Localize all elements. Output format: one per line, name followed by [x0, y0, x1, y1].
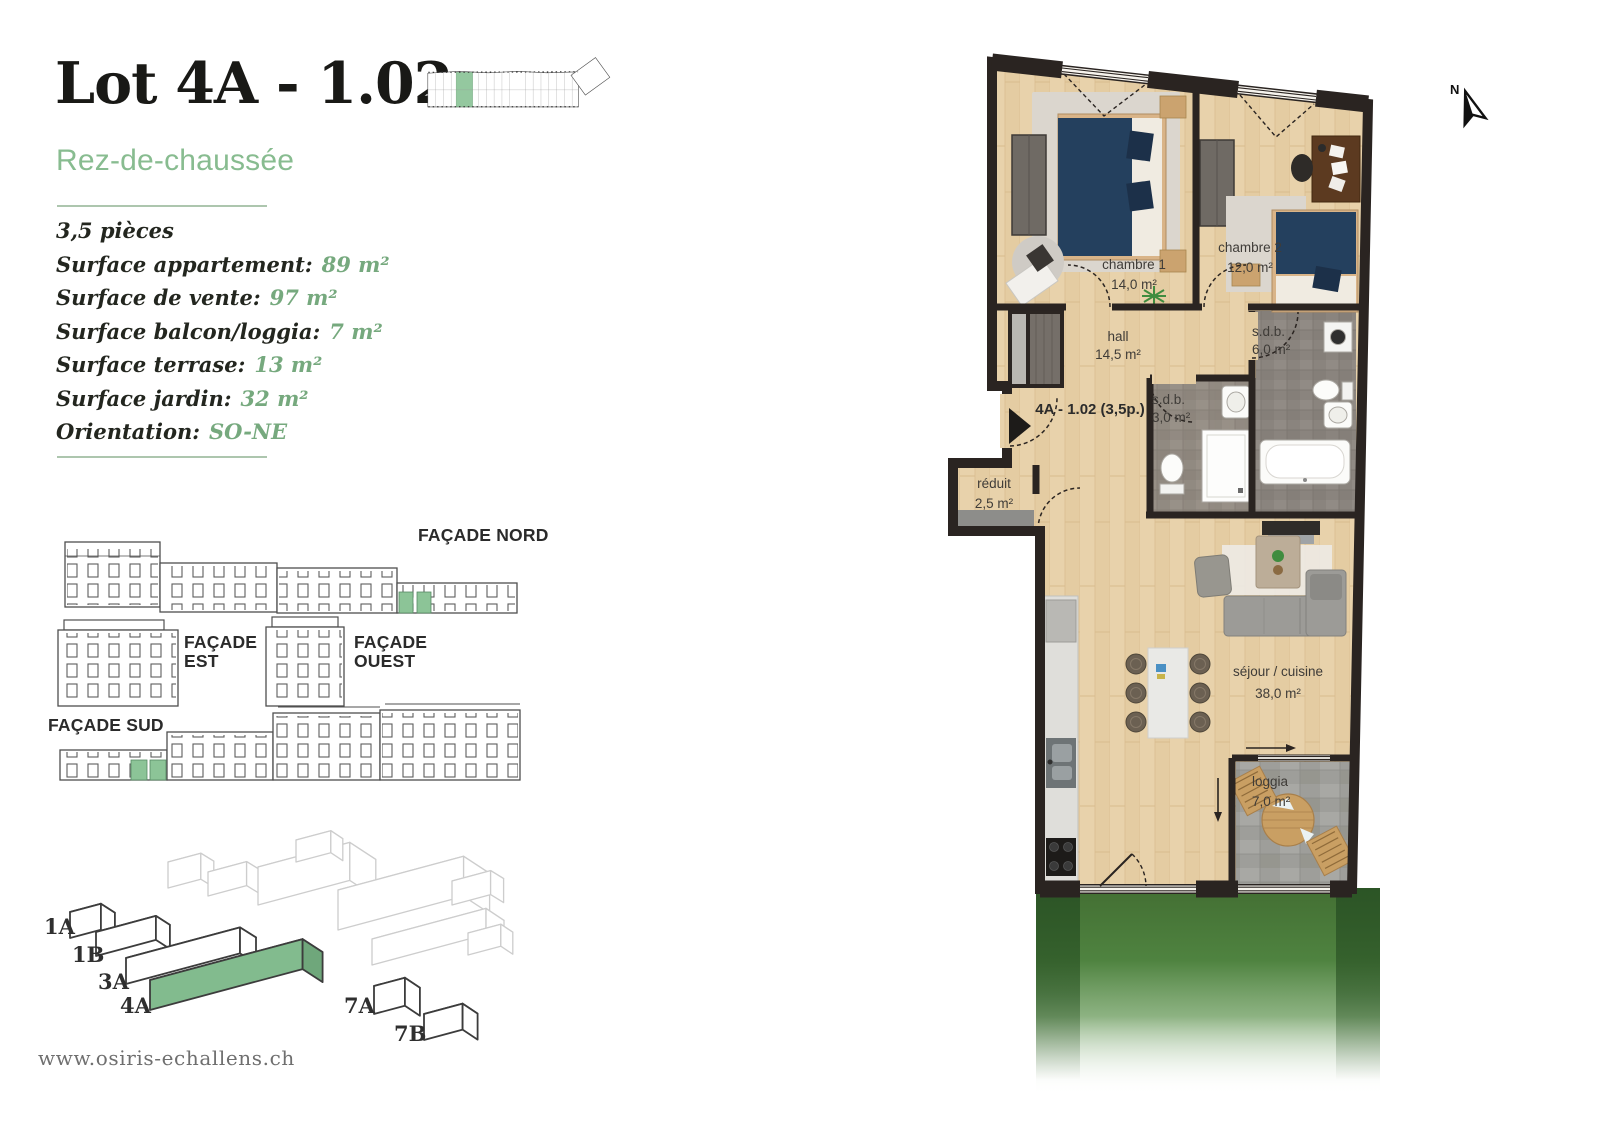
brochure-page: Lot 4A - 1.02 Rez-de-chaussée 3,5 pièces… [0, 0, 1600, 1131]
room-label-sdb6: s.d.b. [1252, 324, 1285, 339]
detail-row: Surface appartement:89 m² [56, 252, 476, 286]
key-plan-outline [428, 71, 579, 107]
room-label-chambre1: chambre 1 [1102, 257, 1166, 272]
svg-text:14,5 m²: 14,5 m² [1095, 347, 1141, 362]
detail-row: Surface terrase:13 m² [56, 352, 476, 386]
svg-text:7,0 m²: 7,0 m² [1252, 794, 1291, 809]
facade-sud-label: FAÇADE SUD [48, 716, 164, 735]
block-label-7b: 7B [394, 1021, 426, 1046]
iso-block [405, 978, 420, 1016]
bedroom2-bed [1276, 212, 1356, 274]
property-details: 3,5 pièces Surface appartement:89 m² Sur… [56, 218, 476, 453]
dining-set [1126, 648, 1210, 738]
floor-subtitle: Rez-de-chaussée [56, 144, 294, 178]
svg-text:12,0 m²: 12,0 m² [1227, 260, 1273, 275]
facade-nord-highlight [417, 592, 431, 613]
facade-nord-label: FAÇADE NORD [418, 526, 549, 545]
room-label-reduit: réduit [977, 476, 1011, 491]
unit-label: 4A - 1.02 (3,5p.) [1035, 401, 1144, 418]
divider-bottom [57, 456, 267, 458]
detail-row: Surface jardin:32 m² [56, 386, 476, 420]
detail-row: Surface balcon/loggia:7 m² [56, 319, 476, 353]
website-url: www.osiris-echallens.ch [38, 1046, 295, 1070]
key-plan-highlight [456, 72, 473, 107]
block-label-7a: 7A [344, 993, 376, 1018]
divider-top [57, 205, 267, 207]
svg-text:6,0 m²: 6,0 m² [1252, 342, 1291, 357]
room-label-chambre2: chambre 2 [1218, 240, 1282, 255]
facade-est-label: FAÇADE EST [184, 633, 266, 672]
toilet [1161, 454, 1183, 482]
hall-closet [1008, 310, 1064, 388]
dining-table [1148, 648, 1188, 738]
svg-text:3,0 m²: 3,0 m² [1152, 410, 1191, 425]
facade-ouest-label: FAÇADE OUEST [354, 633, 442, 672]
room-label-sejour: séjour / cuisine [1233, 664, 1323, 679]
facade-ouest-drawing [266, 617, 344, 706]
iso-block-background [501, 924, 513, 954]
detail-rooms: 3,5 pièces [56, 218, 174, 243]
iso-block-background [168, 853, 201, 888]
floor-plan: chambre 1 14,0 m² chambre 2 12,0 m² hall… [900, 20, 1500, 1100]
svg-text:38,0 m²: 38,0 m² [1255, 686, 1301, 701]
detail-row: Surface de vente:97 m² [56, 285, 476, 319]
block-label-1b: 1B [72, 942, 104, 967]
facade-elevations [40, 505, 540, 795]
garden-grass [1036, 888, 1380, 1095]
room-label-loggia: loggia [1252, 774, 1289, 789]
iso-block [424, 1004, 463, 1040]
iso-block-highlighted [303, 939, 323, 982]
bedroom1-bed [1058, 118, 1132, 256]
facade-sud-highlight [131, 760, 147, 780]
desk-chair [1291, 154, 1313, 182]
north-label: N [1450, 82, 1459, 97]
facade-nord-highlight [399, 592, 413, 613]
facade-sud-highlight [150, 760, 166, 780]
armchair [1194, 554, 1232, 597]
iso-block [374, 978, 405, 1014]
detail-row: Orientation:SO-NE [56, 419, 476, 453]
block-label-1a: 1A [44, 914, 76, 939]
page-title: Lot 4A - 1.02 [55, 50, 452, 117]
svg-text:14,0 m²: 14,0 m² [1111, 277, 1157, 292]
nightstand [1160, 96, 1186, 118]
iso-block [156, 916, 170, 949]
block-label-3a: 3A [98, 969, 130, 994]
toilet [1313, 380, 1339, 400]
room-label-sdb3: s.d.b. [1152, 392, 1185, 407]
block-label-4a: 4A [120, 993, 152, 1018]
north-arrow-icon: N [1450, 82, 1486, 125]
facade-est-drawing [58, 620, 178, 706]
facade-nord-drawing [65, 542, 517, 613]
kitchen-counter [1044, 596, 1078, 886]
svg-text:2,5 m²: 2,5 m² [975, 496, 1014, 511]
site-isometric: 1A 1B 3A 4A 7A 7B [30, 790, 520, 1055]
iso-block-background [491, 871, 504, 903]
site-key-plan [420, 28, 820, 140]
room-label-hall: hall [1107, 329, 1128, 344]
iso-block [463, 1004, 478, 1040]
